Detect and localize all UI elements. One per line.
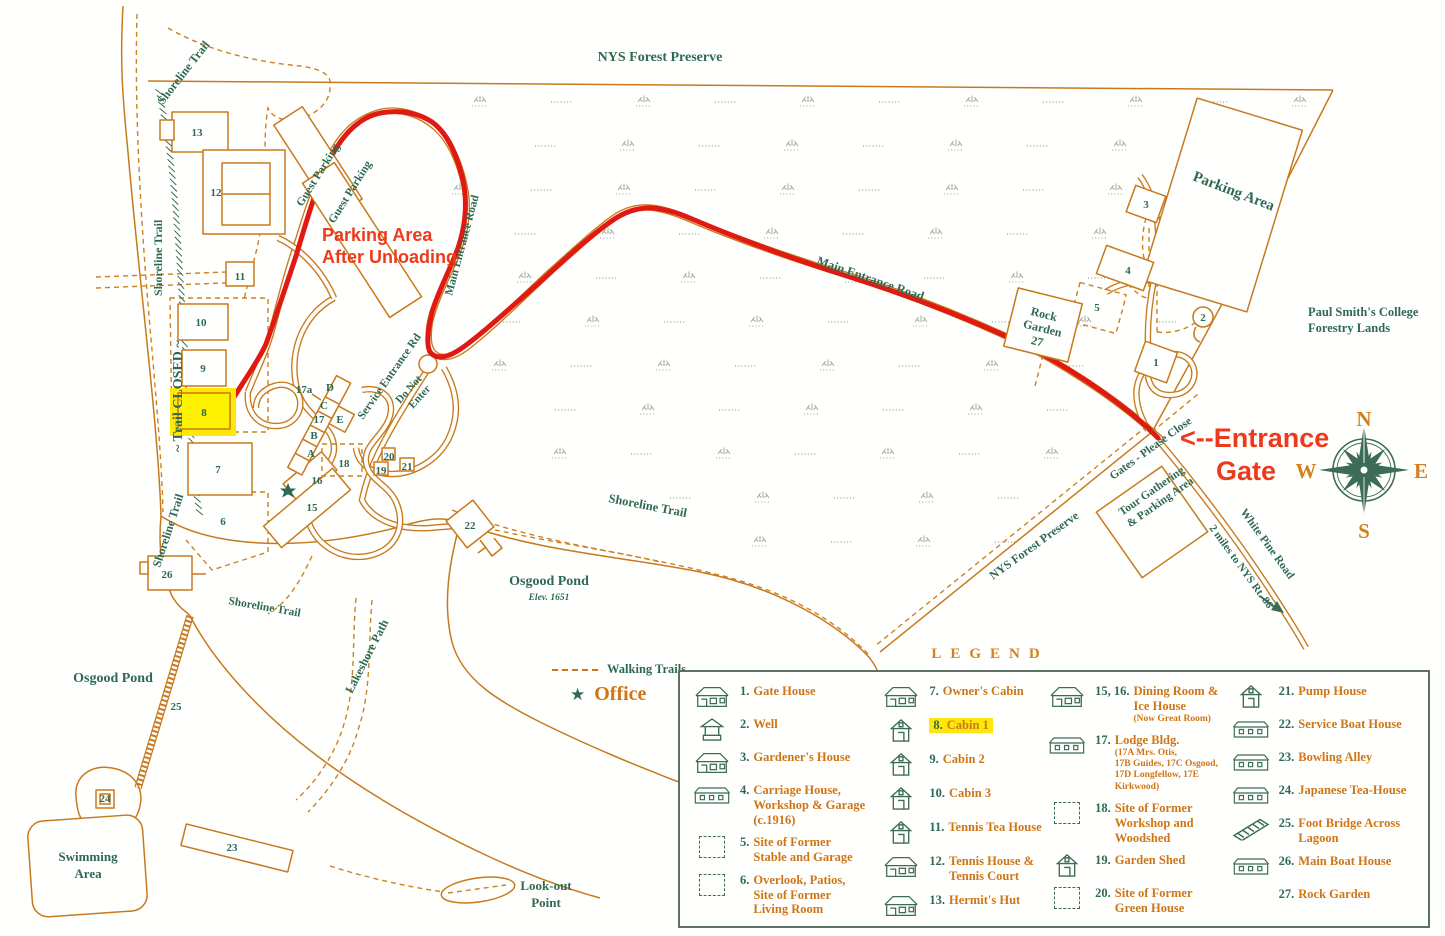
legend-num: 2. <box>740 717 749 732</box>
label-swimming-1: Swimming <box>58 849 118 864</box>
guest-parking-lots <box>274 107 422 318</box>
map-number-25: 25 <box>171 701 183 713</box>
legend-label: Garden Shed <box>1115 853 1186 868</box>
legend-item-foot-bridge: 25.Foot Bridge Across Lagoon <box>1229 816 1422 846</box>
legend-label: Japanese Tea-House <box>1298 783 1406 798</box>
legend-label: Dining Room & Ice House <box>1134 684 1219 713</box>
map-number-13: 13 <box>192 127 204 139</box>
label-shoreline-trail-nw: Shoreline Trail <box>154 38 212 107</box>
legend-label: Gate House <box>753 684 815 699</box>
map-letter-d: D <box>326 382 334 394</box>
legend-item-cabin-2: 9.Cabin 2 <box>879 752 1045 777</box>
legend-num: 7. <box>929 684 938 699</box>
map-number-5: 5 <box>1094 302 1100 314</box>
gardeners-house-icon <box>690 750 734 775</box>
legend-label: Rock Garden <box>1298 887 1370 902</box>
legend-label: Site of Former Stable and Garage <box>753 835 852 865</box>
legend-num: 26. <box>1279 854 1295 869</box>
legend-num: 22. <box>1279 717 1295 732</box>
hermits-hut-icon <box>879 893 923 918</box>
compass-e: E <box>1414 459 1428 483</box>
map-number-12: 12 <box>211 187 223 199</box>
annotation-parking-1: Parking Area <box>322 225 433 245</box>
compass-w: W <box>1296 459 1317 483</box>
tennis-tea-house-icon <box>879 820 923 845</box>
map-number-17a: 17a <box>296 384 313 396</box>
legend-item-gardeners-house: 3.Gardener's House <box>690 750 879 775</box>
legend-label: Main Boat House <box>1298 854 1391 869</box>
legend-item-cabin-1: 8.Cabin 1 <box>879 718 1045 743</box>
map-number-9: 9 <box>200 363 206 375</box>
legend-num: 24. <box>1279 783 1295 798</box>
legend-num: 6. <box>740 873 749 888</box>
legend-label: Owner's Cabin <box>943 684 1024 699</box>
greenhouse-site-icon <box>1054 887 1080 909</box>
map-number-22: 22 <box>465 520 477 532</box>
legend-item-owners-cabin: 7.Owner's Cabin <box>879 684 1045 709</box>
legend-num: 8. <box>933 718 942 733</box>
label-trail-closed: ~ Trail CLOSED ~ <box>171 340 186 452</box>
stable-site-icon <box>699 836 725 858</box>
carriage-house-icon <box>690 783 734 808</box>
label-paul-smiths-1: Paul Smith's College <box>1308 305 1419 319</box>
map-number-2: 2 <box>1200 312 1206 324</box>
legend-spacer <box>1238 887 1264 891</box>
legend-item-tennis-tea-house: 11.Tennis Tea House <box>879 820 1045 845</box>
garden-shed-icon <box>1045 853 1089 878</box>
legend-label: Cabin 3 <box>949 786 991 801</box>
legend-num: 21. <box>1279 684 1295 699</box>
legend-num: 18. <box>1095 801 1111 816</box>
legend-item-well: 2.Well <box>690 717 879 742</box>
map-number-23: 23 <box>227 842 239 854</box>
dashed-trail-sample-icon <box>552 669 598 671</box>
legend-num: 20. <box>1095 886 1111 901</box>
map-number-8: 8 <box>201 407 207 419</box>
legend-label: Foot Bridge Across Lagoon <box>1298 816 1400 846</box>
legend-label: Well <box>753 717 777 732</box>
legend-column-4: 21.Pump House 22.Service Boat House 23.B… <box>1229 684 1422 920</box>
legend-num: 15, 16. <box>1095 684 1129 699</box>
compass-n: N <box>1356 407 1371 431</box>
legend-box: 1.Gate House 2.Well 3.Gardener's House 4… <box>678 670 1430 928</box>
tennis-house-icon <box>879 854 923 879</box>
cabin-1-icon <box>879 718 923 743</box>
label-main-entrance-road-v: Main Entrance Road <box>443 193 482 297</box>
annotation-entrance-gate-2: Gate <box>1216 456 1276 486</box>
legend-num: 5. <box>740 835 749 850</box>
legend-label: Carriage House, Workshop & Garage (c.191… <box>753 783 865 827</box>
map-number-17: 17 <box>314 414 326 426</box>
legend-item-japanese-tea-house: 24.Japanese Tea-House <box>1229 783 1422 808</box>
walking-trails-label: Walking Trails <box>607 662 686 677</box>
gate-house-icon <box>690 684 734 709</box>
label-osgood-pond-west: Osgood Pond <box>73 671 153 686</box>
japanese-tea-house-icon <box>1229 783 1273 808</box>
annotation-parking-2: After Unloading <box>322 247 457 267</box>
map-number-21: 21 <box>402 461 413 473</box>
well-icon <box>690 717 734 742</box>
map-number-3: 3 <box>1143 199 1149 211</box>
label-nys-forest-preserve-diag: NYS Forest Preserve <box>987 508 1082 583</box>
legend-label: Cabin 1 <box>947 718 989 733</box>
legend-item-bowling-alley: 23.Bowling Alley <box>1229 750 1422 775</box>
annotation-entrance-gate-1: <--Entrance <box>1180 423 1329 453</box>
legend-item-rock-garden: 27.Rock Garden <box>1229 887 1422 902</box>
map-number-18: 18 <box>339 458 351 470</box>
map-number-1: 1 <box>1153 357 1159 369</box>
legend-item-pump-house: 21.Pump House <box>1229 684 1422 709</box>
legend-label: Hermit's Hut <box>949 893 1020 908</box>
map-number-10: 10 <box>196 317 208 329</box>
legend-num: 25. <box>1279 816 1295 831</box>
label-shoreline-trail-low: Shoreline Trail <box>227 595 301 620</box>
map-letter-c: C <box>320 400 328 412</box>
legend-num: 10. <box>929 786 945 801</box>
label-lookout-2: Point <box>531 895 561 910</box>
legend-column-3: 15, 16.Dining Room & Ice House(Now Great… <box>1045 684 1229 920</box>
label-osgood-pond-center: Osgood Pond <box>509 574 589 589</box>
office-label: Office <box>594 683 646 706</box>
legend-label: Lodge Bldg. <box>1115 733 1180 747</box>
main-boat-house-icon <box>1229 854 1273 879</box>
legend-item-stable-site: 5.Site of Former Stable and Garage <box>690 835 879 865</box>
legend-label: Bowling Alley <box>1298 750 1372 765</box>
label-main-entrance-road-d: Main Entrance Road <box>815 254 926 304</box>
bowling-alley-icon <box>1229 750 1273 775</box>
map-number-24: 24 <box>100 793 112 805</box>
legend-label: Gardener's House <box>753 750 850 765</box>
label-lookout-1: Look-out <box>520 878 572 893</box>
lodge-bldg-icon <box>1045 733 1089 758</box>
map-number-19: 19 <box>376 465 388 477</box>
map-letter-a: A <box>307 448 315 460</box>
map-number-7: 7 <box>215 464 221 476</box>
label-osgood-elev: Elev. 1651 <box>528 593 570 603</box>
map-letter-b: B <box>310 430 318 442</box>
parking-area-box <box>1142 98 1303 312</box>
cabin-3-icon <box>879 786 923 811</box>
legend-item-greenhouse-site: 20.Site of Former Green House <box>1045 886 1229 916</box>
label-swimming-2: Area <box>74 866 102 881</box>
legend-item-hermits-hut: 13.Hermit's Hut <box>879 893 1045 918</box>
legend-item-service-boat-house: 22.Service Boat House <box>1229 717 1422 742</box>
office-star-key-icon: ★ <box>570 686 585 703</box>
map-number-11: 11 <box>235 271 245 283</box>
legend-num: 17. <box>1095 733 1111 748</box>
label-paul-smiths-2: Forestry Lands <box>1308 321 1390 335</box>
workshop-site-icon <box>1054 802 1080 824</box>
legend-item-carriage-house: 4.Carriage House, Workshop & Garage (c.1… <box>690 783 879 827</box>
legend-item-main-boat-house: 26.Main Boat House <box>1229 854 1422 879</box>
legend-num: 9. <box>929 752 938 767</box>
map-letter-e: E <box>336 414 343 426</box>
label-shoreline-trail-mid: Shoreline Trail <box>607 491 688 520</box>
map-number-6: 6 <box>220 516 226 528</box>
legend-sublabel: (Now Great Room) <box>1134 714 1219 725</box>
pump-house-icon <box>1229 684 1273 709</box>
label-shoreline-trail-west: Shoreline Trail <box>151 219 165 296</box>
legend-item-dining-room: 15, 16.Dining Room & Ice House(Now Great… <box>1045 684 1229 725</box>
map-number-26: 26 <box>162 569 174 581</box>
legend-column-2: 7.Owner's Cabin 8.Cabin 1 9.Cabin 2 10.C… <box>879 684 1045 920</box>
foot-bridge-icon <box>1229 816 1273 841</box>
legend-num: 19. <box>1095 853 1111 868</box>
legend-num: 13. <box>929 893 945 908</box>
legend-label: Tennis Tea House <box>948 820 1041 835</box>
legend-num: 4. <box>740 783 749 798</box>
camp-map-page: N E S W NYS Forest Preserve Shoreline Tr… <box>0 0 1445 936</box>
legend-label: Tennis House & Tennis Court <box>949 854 1034 884</box>
map-number-4: 4 <box>1125 265 1131 277</box>
map-number-16: 16 <box>312 475 324 487</box>
legend-num: 1. <box>740 684 749 699</box>
legend-label: Overlook, Patios, Site of Former Living … <box>753 873 845 917</box>
owners-cabin-icon <box>879 684 923 709</box>
legend-num: 23. <box>1279 750 1295 765</box>
legend-item-overlook-site: 6.Overlook, Patios, Site of Former Livin… <box>690 873 879 917</box>
legend-label: Site of Former Workshop and Woodshed <box>1115 801 1194 845</box>
legend-label: Service Boat House <box>1298 717 1401 732</box>
legend-item-cabin-3: 10.Cabin 3 <box>879 786 1045 811</box>
legend-label: Site of Former Green House <box>1115 886 1193 916</box>
compass-s: S <box>1358 519 1370 543</box>
overlook-site-icon <box>699 874 725 896</box>
legend-item-garden-shed: 19.Garden Shed <box>1045 853 1229 878</box>
legend-label: Pump House <box>1298 684 1366 699</box>
legend-num: 12. <box>929 854 945 869</box>
legend-sublabel: (17A Mrs. Otis, 17B Guides, 17C Osgood, … <box>1115 748 1229 794</box>
legend-num: 3. <box>740 750 749 765</box>
dining-room-icon <box>1045 684 1089 709</box>
service-boat-house-icon <box>1229 717 1273 742</box>
lookout-point-shape <box>440 873 517 907</box>
legend-item-workshop-site: 18.Site of Former Workshop and Woodshed <box>1045 801 1229 845</box>
legend-item-gate-house: 1.Gate House <box>690 684 879 709</box>
legend-item-lodge-bldg: 17.Lodge Bldg.(17A Mrs. Otis, 17B Guides… <box>1045 733 1229 793</box>
legend-column-1: 1.Gate House 2.Well 3.Gardener's House 4… <box>690 684 879 920</box>
label-nys-forest-preserve-top: NYS Forest Preserve <box>598 50 723 65</box>
map-number-15: 15 <box>307 502 319 514</box>
legend-num: 27. <box>1279 887 1295 902</box>
cabin-2-icon <box>879 752 923 777</box>
legend-num: 11. <box>929 820 944 835</box>
legend-item-tennis-house: 12.Tennis House & Tennis Court <box>879 854 1045 884</box>
foot-bridge-25 <box>135 615 193 789</box>
legend-label: Cabin 2 <box>943 752 985 767</box>
map-number-20: 20 <box>384 451 396 463</box>
legend-title: LEGEND <box>885 646 1095 663</box>
